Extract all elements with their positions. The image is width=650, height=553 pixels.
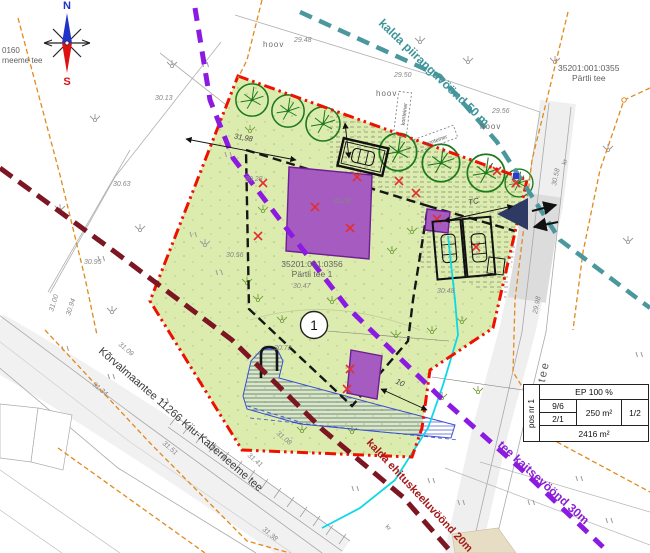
kr-label: kr xyxy=(384,523,393,532)
elevation-label: 30.48 xyxy=(437,288,455,295)
table-pos-cell: pos nr 1 xyxy=(524,385,540,441)
elevation-label: 31.41 xyxy=(246,452,264,469)
table-main: EP 100 % 9/6 2/1 250 m² 1/2 2416 m² xyxy=(540,385,648,441)
elevation-label: 30.56 xyxy=(226,252,244,259)
plot-parcel-code: 35201:001:0356 xyxy=(281,259,343,269)
plot-parcel-name: Pärtli tee 1 xyxy=(292,269,333,279)
elevation-label: 30.47 xyxy=(293,283,312,290)
table-floors-cell: 9/6 2/1 xyxy=(540,400,577,425)
konteiner-box-1: konteiner xyxy=(393,91,411,136)
table-ep-cell: EP 100 % xyxy=(540,385,648,400)
table-pos-label: pos nr 1 xyxy=(527,399,536,428)
elevation-label: 30.63 xyxy=(113,181,131,188)
hoov-label: hoov xyxy=(480,122,501,131)
hoov-label: hoov xyxy=(376,89,397,98)
boundary-marker xyxy=(513,173,519,179)
elevation-label: 30.26 xyxy=(333,198,351,205)
elevation-label: 29.48 xyxy=(293,37,312,44)
detail-plan-drawing: 1 konteiner konteiner xyxy=(0,0,650,553)
table-middle-row: 9/6 2/1 250 m² 1/2 xyxy=(540,400,648,425)
pos-number: 1 xyxy=(310,318,318,333)
building-rights-table: pos nr 1 EP 100 % 9/6 2/1 250 m² 1/2 241… xyxy=(523,384,649,442)
elevation-label: 30.28 xyxy=(245,176,263,183)
table-value-2: 2/1 xyxy=(540,413,576,425)
elevation-label: 30.72 xyxy=(274,345,292,352)
table-total-cell: 2416 m² xyxy=(540,425,648,441)
neighbor-parcel-name: Pärtli tee xyxy=(572,73,606,83)
compass-south-label: S xyxy=(63,76,70,88)
neighbor-parcel-code: 35201:001:0355 xyxy=(558,63,620,73)
elevation-label: 31.09 xyxy=(117,341,135,358)
west-parcel-code-fragment: 0160 xyxy=(2,46,20,55)
table-value-1: 9/6 xyxy=(540,400,576,413)
elevation-label: 30.94 xyxy=(65,298,77,317)
elevation-label: 30.95 xyxy=(84,259,102,266)
compass-north-label: N xyxy=(63,0,71,12)
elevation-label: 31.00 xyxy=(48,294,60,313)
elevation-label: 30.13 xyxy=(155,95,173,102)
table-area-cell: 250 m² xyxy=(577,400,622,425)
outbuilding xyxy=(347,350,382,399)
elevation-label: 29.50 xyxy=(393,72,412,79)
konteiner-label: konteiner xyxy=(401,102,410,125)
hoov-label: hoov xyxy=(263,40,284,49)
table-ratio-cell: 1/2 xyxy=(622,400,648,425)
compass-rose: N S xyxy=(44,0,90,88)
boundary-point xyxy=(622,98,626,102)
site-plan-canvas: 1 konteiner konteiner xyxy=(0,0,650,553)
elevation-label: 29.56 xyxy=(491,108,510,115)
west-parcel-name-fragment: rneeme tee xyxy=(2,56,43,65)
